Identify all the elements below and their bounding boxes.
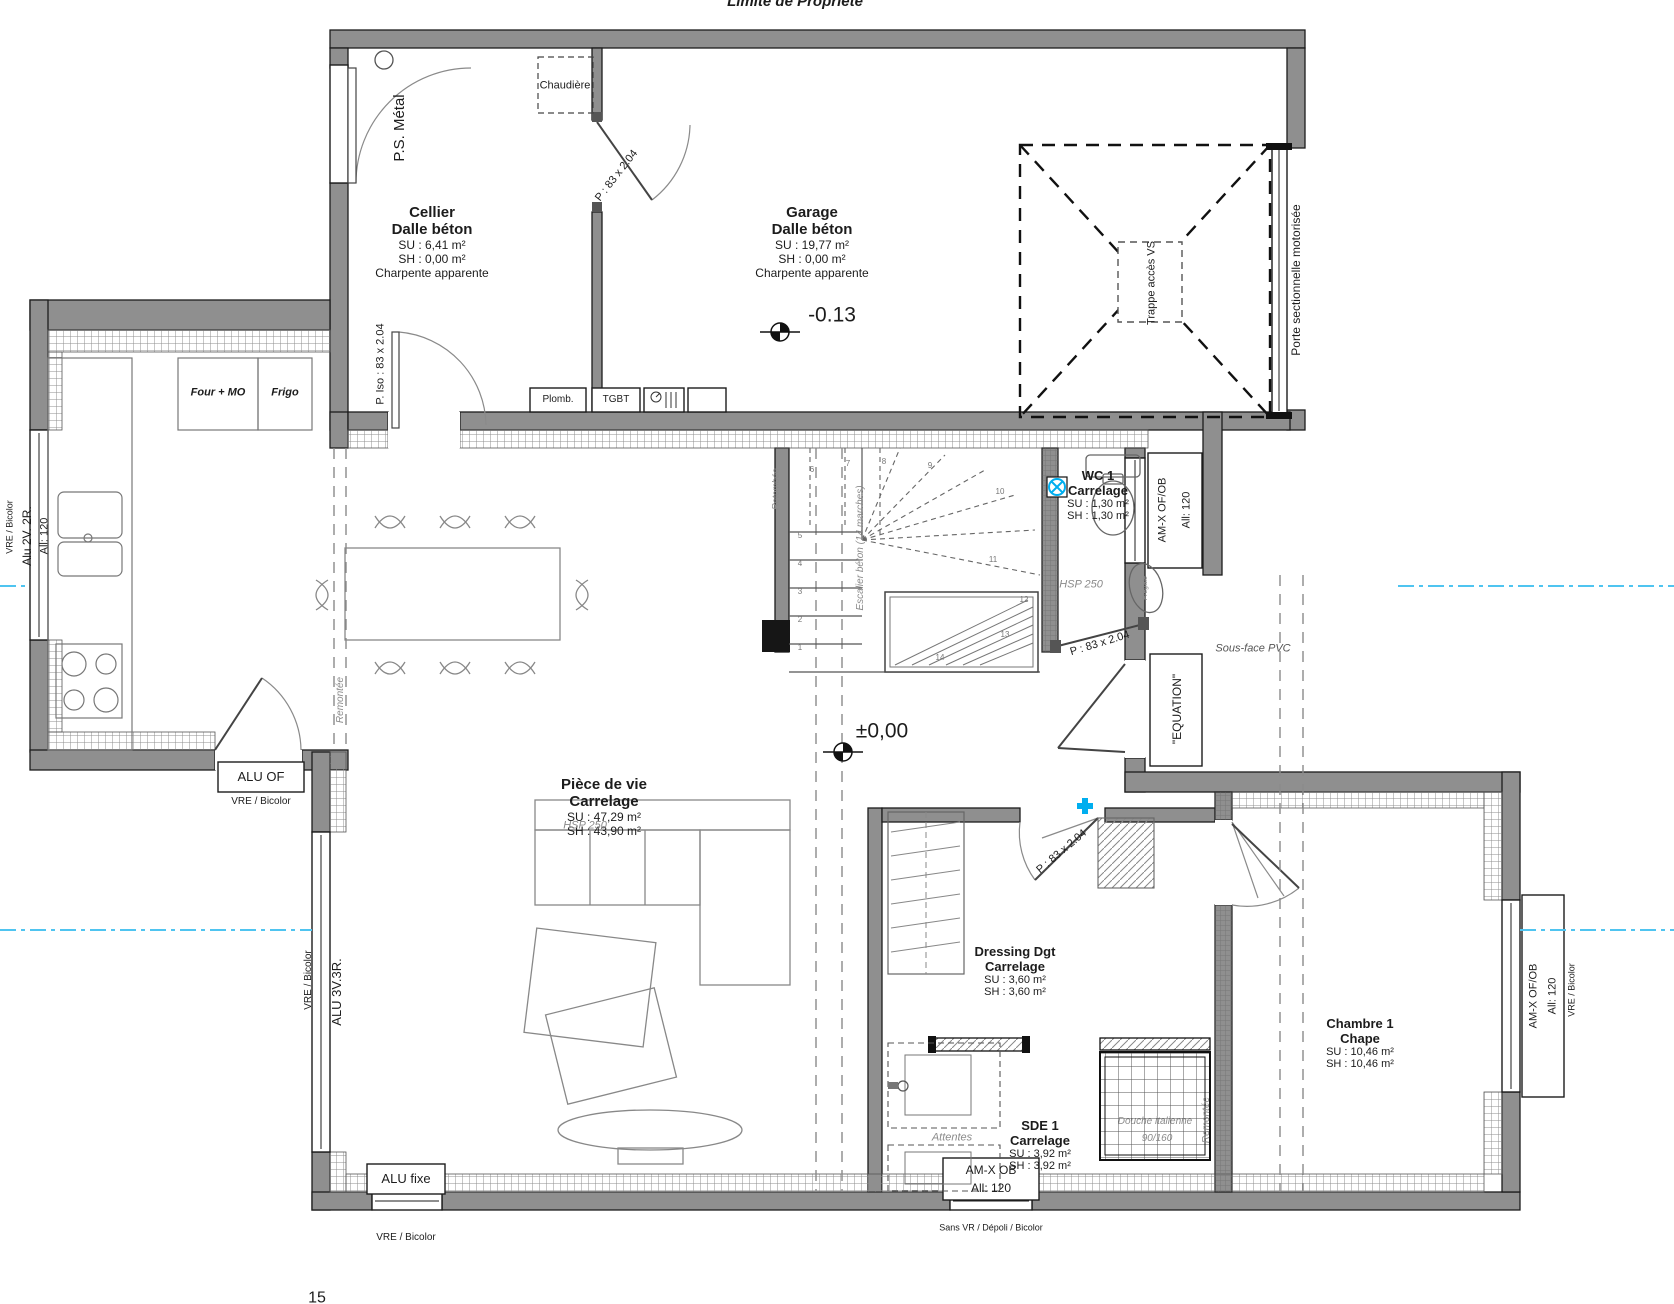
room-title: Cellier [375,204,488,221]
chambre-window-type: AM-X OF/OB [1527,964,1540,1029]
basin-label: Frégate [1142,576,1150,600]
room-title: WC 1 [1067,468,1129,483]
room-title: Garage [755,204,868,221]
room-sh: SH : 1,30 m² [1067,510,1129,522]
room-sh: SH : 0,00 m² [755,252,868,266]
stair-number: 8 [882,457,886,467]
level-marker-living [823,743,863,761]
shower-label-2: 90/160 [1142,1133,1173,1145]
room-chambre1: Chambre 1 Chape SU : 10,46 m² SH : 10,46… [1326,1016,1394,1070]
room-floor: Carrelage [1009,1133,1071,1148]
stair-number: 13 [1001,630,1010,640]
kitchen-window-type: Alu 2V. 2R. [20,506,34,566]
wc-window-type: AM-X OF/OB [1156,478,1169,543]
chambre-window-glazing: VRE / Bicolor [1567,963,1578,1017]
room-floor: Chape [1326,1031,1394,1046]
living-level-value: ±0,00 [856,718,908,743]
chairs [316,516,588,674]
alu-fixe-glazing: VRE / Bicolor [376,1232,435,1244]
door-p-iso-label: P. Iso : 83 x 2.04 [374,323,387,404]
sde-window-note: Sans VR / Dépoli / Bicolor [939,1223,1043,1234]
stair-number: 5 [798,531,802,541]
stair-number: 1 [798,643,802,653]
staircase [762,448,1040,672]
wc-window-height: All: 120 [1180,492,1193,529]
bay-window-glazing: VRE / Bicolor [303,950,315,1009]
chaudiere-label: Chaudière [540,79,591,92]
room-note: Charpente apparente [375,266,488,280]
living-furniture [316,516,790,1164]
stair-number: 14 [936,653,945,663]
room-su: SU : 3,92 m² [1009,1148,1071,1160]
room-sh: SH : 10,46 m² [1326,1058,1394,1070]
property-line-label: Limite de Propriété [727,0,863,11]
room-floor: Carrelage [561,793,647,810]
retombee-label: Retombée [771,468,782,510]
door-stop-icon [375,51,393,69]
room-cellier: Cellier Dalle béton SU : 6,41 m² SH : 0,… [375,204,488,280]
room-garage: Garage Dalle béton SU : 19,77 m² SH : 0,… [755,204,868,280]
stair-number: 10 [996,487,1005,497]
stair-number: 9 [928,461,932,471]
room-sh: SH : 3,92 m² [1009,1160,1071,1172]
stair-number: 6 [810,465,814,475]
four-mo-label: Four + MO [191,386,246,399]
remontee-label-2: Remontée [1201,1097,1213,1143]
room-note: Charpente apparente [755,266,868,280]
room-title: Chambre 1 [1326,1016,1394,1031]
plumbing-cross-icon [1077,798,1093,814]
stair-label: Escalier béton (14 marches) [855,485,867,610]
garage-door-label: Porte sectionnelle motorisée [1289,204,1303,355]
bay-window-type: ALU 3V.3R. [329,958,345,1025]
room-floor: Carrelage [1067,483,1129,498]
room-title: Dressing Dgt [975,944,1056,959]
alu-of-label: ALU OF [238,769,285,785]
vmc-icon [1047,477,1067,497]
room-floor: Dalle béton [755,221,868,238]
remontee-label-1: Remontée [335,677,347,723]
alu-of-glazing: VRE / Bicolor [231,796,290,808]
room-su: SU : 6,41 m² [375,238,488,252]
shower-label-1: Douche italienne [1118,1116,1193,1128]
room-su: SU : 3,60 m² [975,974,1056,986]
sheet-number: 15 [308,1288,326,1304]
kitchen-window-height: All: 120 [38,518,51,555]
room-su: SU : 19,77 m² [755,238,868,252]
wc1-hsp: HSP 250 [1059,578,1103,591]
stair-number: 3 [798,587,802,597]
plomb-label: Plomb. [542,394,573,406]
room-floor: Carrelage [975,959,1056,974]
stair-number: 11 [989,555,997,565]
room-sh: SH : 3,60 m² [975,986,1056,998]
stair-number: 2 [798,615,802,625]
plan-drawing [0,0,1674,1304]
floor-plan: Limite de Propriété P.S. Métal Chaudière… [0,0,1674,1304]
sde-window-type: AM-X OB [966,1163,1017,1177]
sde-window-height: All: 120 [971,1181,1011,1195]
room-sh: SH : 0,00 m² [375,252,488,266]
entrance-door-label: "EQUATION" [1170,674,1184,744]
trappe-label: Trappe accès VS [1145,241,1158,325]
stair-number: 4 [798,559,802,569]
room-floor: Dalle béton [375,221,488,238]
room-wc1: WC 1 Carrelage SU : 1,30 m² SH : 1,30 m² [1067,468,1129,522]
garage-level-value: -0.13 [808,302,856,327]
room-su: SU : 10,46 m² [1326,1046,1394,1058]
soffit-label: Sous-face PVC [1215,642,1290,655]
door-ps-metal-label: P.S. Métal [391,94,409,161]
room-title: SDE 1 [1009,1118,1071,1133]
room-dressing: Dressing Dgt Carrelage SU : 3,60 m² SH :… [975,944,1056,998]
attentes-label: Attentes [932,1131,972,1144]
tgbt-label: TGBT [603,394,630,406]
room-sde1: SDE 1 Carrelage SU : 3,92 m² SH : 3,92 m… [1009,1118,1071,1172]
chambre-window-height: All: 120 [1546,978,1559,1015]
stair-number: 12 [1020,595,1029,605]
level-marker-garage [760,323,800,341]
kitchen-window-glazing: VRE / Bicolor [5,500,16,554]
room-title: Pièce de vie [561,776,647,793]
frigo-label: Frigo [271,386,299,399]
room-su: SU : 1,30 m² [1067,498,1129,510]
stair-number: 7 [846,459,850,469]
piece-hsp: HSP 250 [563,819,607,832]
alu-fixe-label: ALU fixe [381,1171,430,1187]
kitchen-fixtures [48,358,312,750]
